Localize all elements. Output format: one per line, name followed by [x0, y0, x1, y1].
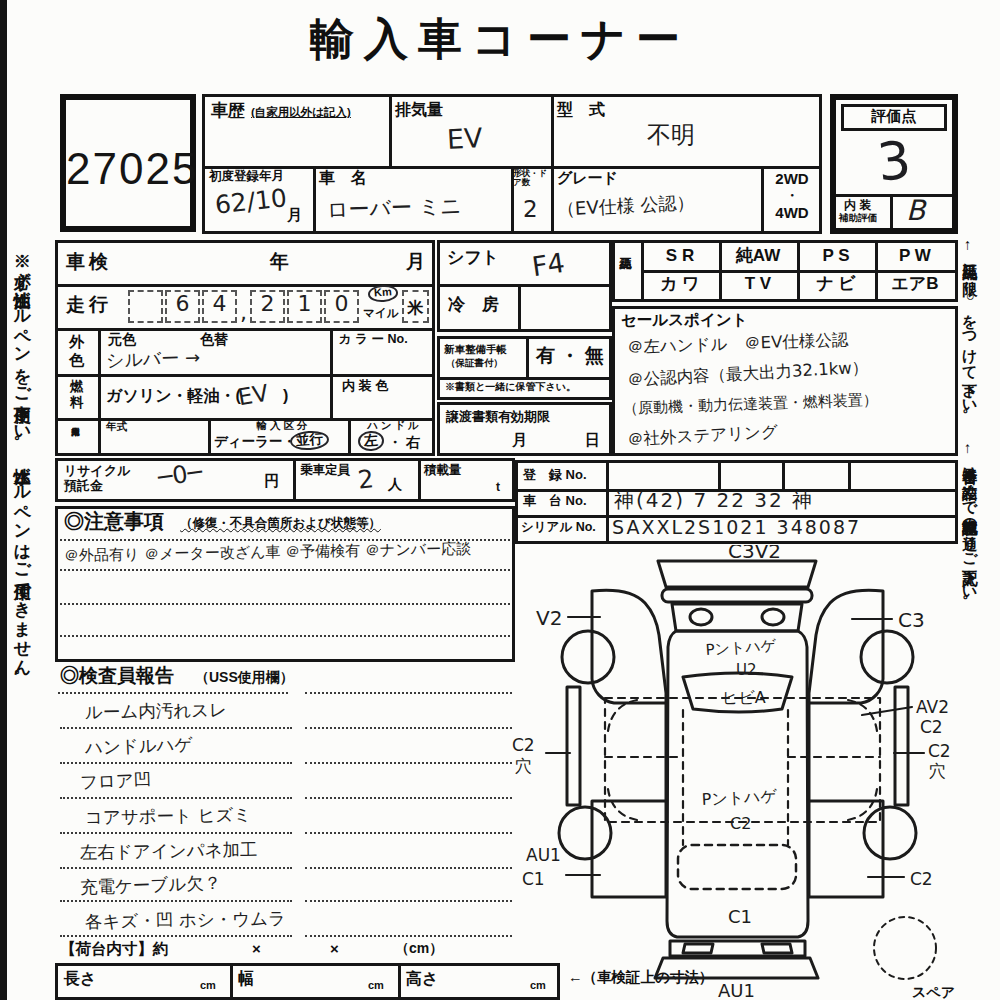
code-right-hole-1: C2 [928, 741, 951, 761]
front-bumper-strip [662, 589, 812, 602]
doors-label: 形状・ドア数 [513, 169, 549, 187]
code-left-hole-1: C2 [512, 735, 535, 755]
divider-line [440, 377, 609, 380]
sales-points-label: セールスポイント [621, 312, 748, 328]
auction-sheet: 輸入車コーナー ※必ず油性ボールペンをご使用下さい。 水性ボールペンはご使用でき… [0, 0, 1000, 1000]
car-name-value: ローバー ミニ [327, 195, 462, 222]
rating-label-box: 評価点 [841, 104, 947, 131]
divider-line [58, 374, 432, 377]
divider-line [293, 461, 296, 499]
import-class-label: 輸 入 区 分 [218, 420, 346, 431]
cautions-box: ◎注意事項 （修復・不具合箇所および状態等） ＠外品有り ＠メーター改ざん車 ＠… [55, 506, 515, 662]
service-book-label: 新車整備手帳 [444, 344, 507, 355]
doors-value: 2 [523, 197, 538, 221]
rear-window [678, 845, 796, 889]
divider-line [836, 194, 952, 197]
recycle-yen: 円 [264, 473, 279, 489]
code-right-hole-2: 穴 [929, 761, 946, 781]
fuel-label: 燃料 [70, 379, 87, 411]
rating-label: 評価点 [872, 107, 917, 124]
shift-label: シフト [447, 249, 499, 267]
genuine-label: 純正品 [619, 248, 632, 296]
report-item: フロア凹 [80, 771, 152, 792]
genuine-parts-grid: 純正品 S R 純AW P S P W カ ワ T V ナ ビ エアB [612, 240, 958, 302]
divider-line [348, 418, 351, 453]
grade-label: グレード [557, 170, 618, 186]
recycle-label-2: 預託金 [64, 479, 103, 493]
genuine-sr: S R [641, 247, 719, 265]
orig-color-label: 元色 [108, 332, 136, 347]
keep-note: ※書類と一緒に保管下さい。 [445, 382, 576, 393]
ac-label: 冷 房 [448, 296, 499, 314]
sales-point-line: ＠公認内容（最大出力32.1kw） [627, 359, 869, 389]
sales-point-line: （原動機・動力伝達装置・燃料装置） [623, 393, 878, 418]
drive-dot: ・ [765, 189, 819, 203]
capacity-unit: 人 [388, 477, 402, 492]
dotted-line [305, 797, 512, 799]
genuine-pw: P W [875, 247, 955, 265]
spare-tire-circle [874, 917, 936, 979]
right-front-wheel [861, 631, 913, 683]
divider-line [313, 166, 316, 231]
taillight-left [683, 944, 713, 953]
divider-line [230, 966, 233, 997]
genuine-airbag: エアB [875, 275, 955, 293]
sales-point-line: ＠社外ステアリング [627, 423, 779, 448]
color-no-label: カ ラ ー No. [339, 333, 408, 346]
length-label: 長さ [64, 971, 96, 988]
dotted-line [60, 900, 292, 902]
divider-line [208, 418, 211, 453]
spare-label: スペア [912, 984, 955, 1000]
mileage-digit-box: 1 [287, 290, 322, 323]
dotted-line [60, 762, 292, 764]
windshield-damage-text: ヒビA [722, 688, 766, 707]
roof-damage-text: Pントハゲ [701, 786, 778, 809]
dotted-line [60, 797, 292, 799]
serial-no-value: SAXXL2S1021 348087 [612, 518, 861, 538]
margin-note-left: ※必ず油性ボールペンをご使用下さい。 水性ボールペンはご使用できません。 [13, 242, 31, 802]
report-item: ハンドルハゲ [85, 735, 193, 757]
car-damage-diagram: C3V2 V2 C3 Pントハゲ U2 ヒビA AV2 C2 C2 穴 C2 穴… [500, 545, 965, 1000]
shaken-month-label: 月 [406, 252, 425, 272]
rear-bumper-code: AU1 [718, 980, 755, 1000]
import-class-pre: ディーラー・ [214, 435, 296, 449]
report-heading: ◎検査員報告 [60, 666, 174, 686]
dotted-line [305, 900, 512, 902]
scan-edge-left [0, 0, 7, 1000]
divider-line [761, 166, 764, 231]
front-bumper [658, 561, 816, 587]
mileage-digit-box: 6 [165, 290, 200, 323]
recycle-row: リサイクル 預託金 ─0─ 円 乗車定員 2 人 積載量 t [55, 458, 515, 502]
code-left-hole-2: 穴 [515, 756, 532, 776]
divider-line [398, 966, 401, 997]
handle-left-circled: 左 [357, 430, 384, 451]
divider-line [330, 328, 333, 374]
page-title: 輸入車コーナー [0, 16, 1000, 62]
genuine-navi: ナ ビ [797, 275, 875, 293]
load-label: 積載量 [424, 464, 462, 477]
height-label: 高さ [406, 971, 438, 988]
mileage-digit-box: 4 [202, 290, 237, 323]
dotted-line [305, 867, 512, 869]
transfer-label: 譲渡書類有効期限 [446, 410, 550, 424]
divider-line [782, 463, 785, 489]
cautions-line: ＠外品有り ＠メーター改ざん車 ＠予備検有 ＠ナンバー応談 [64, 541, 471, 564]
taillight-right [762, 944, 792, 953]
first-reg-label: 初度登録年月 [209, 170, 284, 183]
mileage-unit-km: Km [367, 284, 398, 303]
drive-4wd: 4WD [765, 205, 819, 221]
shaken-year-label: 年 [270, 252, 289, 272]
divider-line [606, 463, 609, 541]
service-book-box: 新車整備手帳 （保証書付） 有 ・ 無 ※書類と一緒に保管下さい。 [437, 336, 612, 400]
report-item: 充電ケーブル欠？ [80, 874, 222, 897]
color-change-label: 色替 [200, 332, 228, 347]
chassis-no-label: 車 台 No. [523, 494, 587, 508]
history-label: 車歴 [211, 102, 245, 120]
headlight-right [762, 609, 784, 625]
sales-point-line: ＠左ハンドル ＠EV仕様公認 [627, 331, 849, 356]
code-left-rear-2: C1 [522, 869, 545, 889]
divider-line [98, 418, 101, 453]
divider-line [389, 97, 392, 166]
dotted-line [60, 727, 292, 729]
interior-grade: B [906, 196, 925, 225]
fuel-printed-pre: ガソリン・軽油・( [106, 388, 241, 405]
code-right-front: C3 [898, 608, 925, 632]
dotted-line [60, 867, 292, 869]
car-name-label: 車 名 [319, 170, 367, 187]
code-left-front: V2 [536, 606, 562, 630]
mileage-comma: , [240, 301, 247, 324]
mileage-unit-bei: 米 [402, 290, 429, 323]
report-item: ルーム内汚れスレ [85, 701, 227, 722]
interior-color-label: 内 装 色 [342, 379, 388, 393]
displacement-label: 排気量 [395, 102, 443, 119]
dotted-line [60, 603, 510, 605]
divider-line [98, 374, 101, 418]
service-book-value: 有 ・ 無 [536, 346, 604, 366]
length-unit: cm [200, 980, 216, 992]
genuine-kawa: カ ワ [641, 275, 719, 293]
cautions-heading-note: （修復・不具合箇所および状態等） [180, 517, 381, 530]
hood-damage-text: Pントハゲ [705, 636, 777, 659]
width-unit: cm [368, 980, 384, 992]
dotted-line [60, 832, 292, 834]
chassis-no-value: 神(42) 7 22 32 神 [614, 490, 814, 511]
transfer-month-label: 月 [512, 432, 527, 448]
dotted-line [60, 569, 510, 571]
grade-value: （EV仕様 公認） [557, 193, 695, 219]
interior-label-1: 内 装 [844, 199, 871, 212]
service-book-sublabel: （保証書付） [446, 358, 503, 368]
handle-rest: ・ 右 [388, 435, 420, 450]
dotted-line [305, 692, 512, 694]
color-value: シルバー → [106, 348, 201, 370]
mileage-unit-mile: マイル [363, 307, 398, 319]
dotted-line [305, 935, 512, 937]
import-label: 輸入車用 [71, 420, 80, 453]
rating-score: 3 [833, 128, 954, 194]
dotted-line [60, 635, 510, 637]
divider-line [718, 463, 721, 489]
code-left-rear-1: AU1 [526, 845, 561, 865]
serial-no-label: シリアル No. [521, 521, 596, 534]
divider-line [98, 328, 101, 374]
divider-line [518, 284, 521, 329]
shaken-label: 車検 [66, 252, 112, 272]
registration-block: 登 録 No. 車 台 No. 神(42) 7 22 32 神 シリアル No.… [515, 460, 958, 544]
divider-line [440, 284, 609, 287]
right-front-fender [809, 590, 883, 703]
divider-line [551, 97, 554, 166]
capacity-value: 2 [357, 466, 376, 494]
report-item: 左右ドアインパネ加工 [80, 840, 258, 861]
mileage-digit-box: 2 [250, 290, 285, 323]
code-front-top: C3V2 [728, 545, 781, 563]
code-right-side-2: C2 [920, 717, 943, 737]
divider-line [418, 461, 421, 499]
reg-no-label: 登 録 No. [523, 468, 587, 482]
first-reg-value: 62/10 [214, 185, 288, 219]
rear-bumper [655, 958, 818, 978]
dotted-line [305, 832, 512, 834]
rear-panel-code: C1 [728, 906, 752, 927]
shift-value: F4 [530, 249, 566, 282]
cautions-heading: ◎注意事項 [64, 511, 164, 532]
mileage-label: 走行 [66, 295, 112, 315]
divider-line [551, 166, 554, 231]
dotted-line [305, 727, 512, 729]
lot-number: 27025 [66, 144, 190, 194]
hood-damage-grade: U2 [736, 661, 757, 679]
mileage-digit-box: 0 [324, 290, 359, 323]
bed-dims-x2: × [330, 941, 339, 957]
ext-color-label: 外色 [69, 333, 87, 369]
right-rocker-panel [895, 687, 908, 805]
left-front-wheel [562, 631, 614, 683]
left-rocker-panel [567, 687, 580, 805]
genuine-ps: P S [797, 247, 875, 265]
left-front-fender [592, 590, 666, 703]
displacement-value: EV [446, 124, 483, 154]
lot-number-box: 27025 [60, 94, 196, 232]
handle-label: ハ ン ド ル [356, 420, 430, 431]
capacity-label: 乗車定員 [300, 464, 350, 477]
interior-label-2: 補助評価 [839, 213, 877, 223]
recycle-value: ─0─ [156, 460, 203, 491]
code-right-side-1: AV2 [916, 697, 949, 717]
report-heading-note: （USS使用欄） [195, 670, 294, 685]
right-rear-wheel [864, 807, 916, 859]
width-label: 幅 [238, 971, 254, 988]
drive-2wd: 2WD [765, 171, 819, 187]
divider-line [330, 374, 333, 418]
genuine-aw: 純AW [719, 247, 797, 265]
sales-points-box: セールスポイント ＠左ハンドル ＠EV仕様公認 ＠公認内容（最大出力32.1kw… [612, 306, 958, 456]
report-item: 各キズ・凹 ホシ・ウムラ [85, 909, 286, 931]
recycle-label-1: リサイクル [64, 464, 131, 478]
roof-damage-grade: C2 [730, 814, 751, 833]
dotted-line [305, 762, 512, 764]
bed-dims-x1: × [252, 941, 261, 957]
mileage-digit-box [128, 290, 163, 323]
header-table: 車歴 (自家用以外は記入) 排気量 EV 型 式 不明 初度登録年月 62/10… [202, 94, 822, 234]
model-value: 不明 [647, 123, 695, 148]
dimension-table: 長さ cm 幅 cm 高さ cm [55, 963, 560, 1000]
history-note: (自家用以外は記入) [251, 106, 351, 118]
headlight-left [690, 609, 712, 625]
first-reg-month-suffix: 月 [287, 207, 302, 223]
divider-line [848, 463, 851, 489]
bed-dims-cm-note: （cm） [395, 941, 443, 956]
inspection-table: 車検 年 月 走行 6 4 , 2 1 0 Km マイル 米 外色 元色 色替 … [55, 240, 435, 456]
year-model-label: 年式 [106, 421, 127, 432]
import-class-heiko-circled: 並行 [289, 430, 329, 452]
bed-dims-label: 【荷台内寸】約 [60, 941, 169, 957]
shift-ac-box: シフト F4 冷 房 [437, 240, 612, 332]
load-unit: t [496, 481, 500, 494]
divider-line [526, 339, 529, 377]
divider-line [890, 194, 893, 228]
rating-box: 評価点 3 内 装 補助評価 B [830, 94, 958, 234]
transfer-docs-box: 譲渡書類有効期限 月 日 [437, 402, 612, 456]
model-label: 型 式 [557, 102, 605, 119]
dotted-line [60, 935, 292, 937]
report-item: コアサポート ヒズミ [85, 806, 252, 827]
left-rear-wheel [559, 807, 611, 859]
genuine-tv: T V [719, 275, 797, 293]
transfer-day-label: 日 [585, 432, 600, 448]
fuel-value: EV [236, 381, 270, 410]
fuel-printed-post: ) [283, 388, 288, 405]
code-right-rear: C2 [910, 869, 933, 889]
dotted-line [58, 692, 288, 694]
